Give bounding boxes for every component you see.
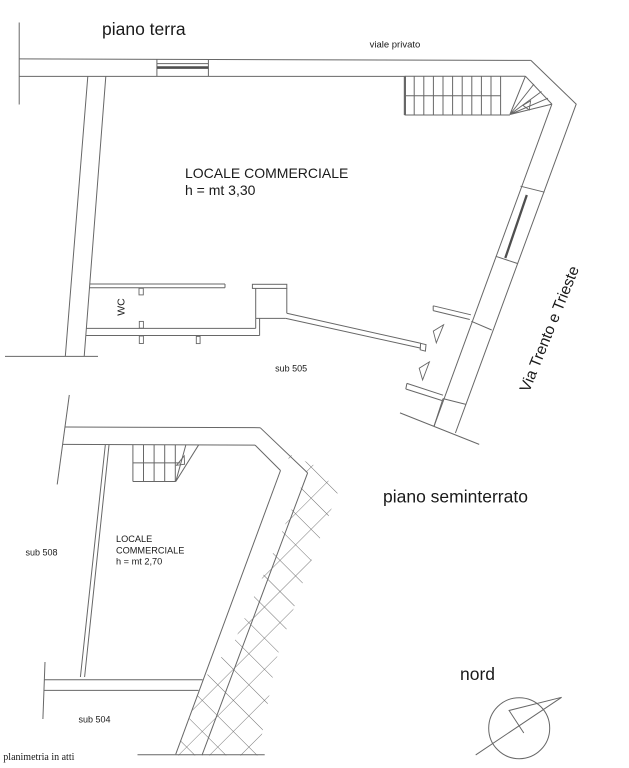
- svg-text:piano terra: piano terra: [102, 19, 186, 39]
- svg-text:viale privato: viale privato: [370, 39, 421, 50]
- svg-text:COMMERCIALE: COMMERCIALE: [116, 546, 184, 556]
- svg-text:planimetria in atti: planimetria in atti: [3, 752, 74, 763]
- svg-text:Via Trento e Trieste: Via Trento e Trieste: [517, 264, 583, 395]
- svg-text:WC: WC: [116, 298, 128, 316]
- svg-text:LOCALE: LOCALE: [116, 534, 152, 544]
- svg-text:sub 504: sub 504: [79, 715, 111, 725]
- svg-text:sub 505: sub 505: [275, 363, 307, 373]
- svg-text:piano seminterrato: piano seminterrato: [383, 487, 528, 507]
- svg-text:h = mt 3,30: h = mt 3,30: [185, 182, 256, 198]
- svg-text:sub 508: sub 508: [26, 548, 58, 558]
- svg-text:nord: nord: [460, 664, 495, 684]
- svg-text:LOCALE COMMERCIALE: LOCALE COMMERCIALE: [185, 165, 348, 181]
- svg-text:h = mt 2,70: h = mt 2,70: [116, 557, 162, 567]
